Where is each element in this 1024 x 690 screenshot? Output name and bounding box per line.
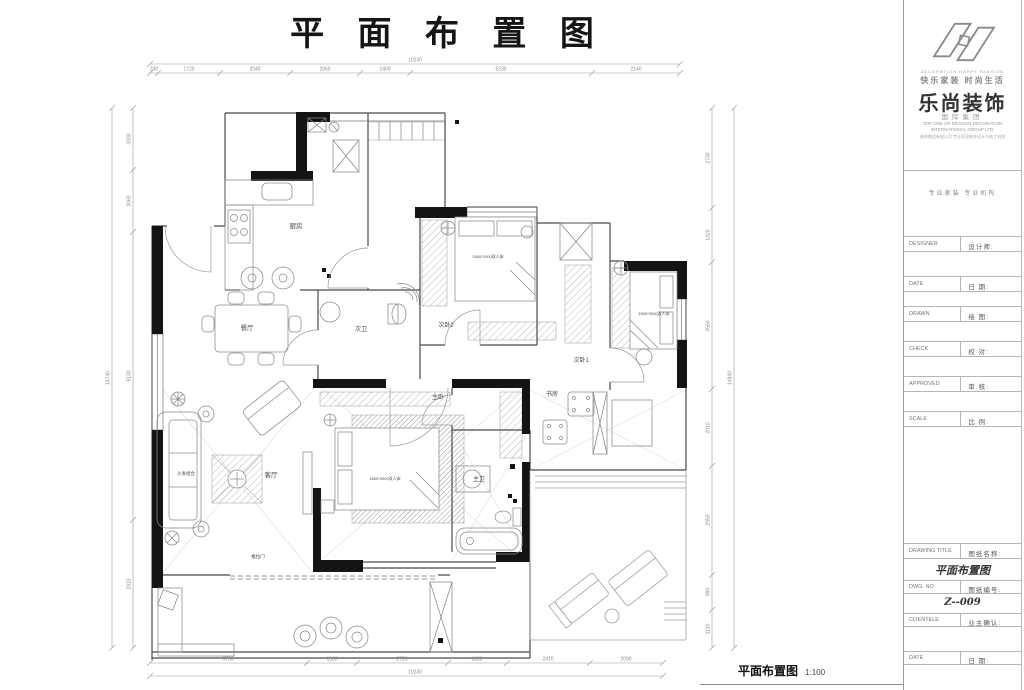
caption-underline: [700, 684, 904, 685]
field-label-en: CLIENTELE: [904, 614, 961, 626]
svg-text:2140: 2140: [630, 67, 641, 73]
dimensions: 2401720204020601400523021401023067301300…: [106, 58, 738, 680]
title-block: DECORATION HAPPY FASHION 快乐家装 时尚生活 乐尚装饰 …: [903, 0, 1022, 690]
field-label-en: DWG. NO: [904, 581, 961, 593]
field-label-cn: 校 对:: [961, 342, 989, 356]
field-label-en: DRAWING TITLE: [904, 544, 961, 558]
svg-text:2040: 2040: [249, 67, 260, 73]
svg-text:10230: 10230: [408, 670, 422, 676]
svg-text:9130: 9130: [127, 370, 133, 381]
svg-text:次卧1: 次卧1: [573, 356, 589, 364]
master-bed: [321, 414, 439, 513]
svg-text:6730: 6730: [222, 657, 233, 663]
svg-text:14940: 14940: [728, 371, 734, 385]
svg-text:推拉门: 推拉门: [251, 553, 265, 560]
field-label-cn: 设计师:: [961, 237, 993, 251]
svg-text:2730: 2730: [706, 152, 712, 163]
svg-text:2090: 2090: [620, 657, 631, 663]
company-address: 装饰集团有限公司·专业家居装饰设计与施工机构: [904, 134, 1021, 140]
slogan-cn: 快乐家装 时尚生活: [904, 75, 1021, 86]
field-label-cn: 日 期:: [961, 652, 989, 664]
field-label-cn: 日 期:: [961, 277, 989, 291]
field-label-cn: 业主确认:: [961, 614, 1001, 626]
company-logo-icon: [922, 16, 1006, 68]
svg-text:主卫: 主卫: [473, 475, 485, 483]
svg-text:主卧: 主卧: [432, 393, 444, 401]
thin-walls: [152, 113, 686, 660]
svg-text:14740: 14740: [106, 371, 112, 385]
study-furniture: [543, 392, 652, 446]
field-approved: APPROVED 审 核:: [904, 376, 1021, 392]
field-designer: DESIGNER 设计师:: [904, 236, 1021, 252]
svg-text:次卫: 次卫: [355, 325, 367, 333]
svg-text:客厅: 客厅: [265, 470, 279, 479]
svg-text:2010: 2010: [706, 422, 712, 433]
bedroom2-furniture: [441, 217, 535, 301]
dwg-no-value: Z--009: [904, 597, 1021, 608]
svg-text:240: 240: [150, 67, 159, 73]
svg-text:1300: 1300: [326, 657, 337, 663]
terrace: [530, 470, 686, 640]
field-drawing-title: DRAWING TITLE 图纸名称:: [904, 543, 1021, 559]
svg-text:5230: 5230: [495, 67, 506, 73]
svg-text:1800*2000双人床: 1800*2000双人床: [369, 475, 400, 481]
furniture: [157, 118, 686, 656]
svg-text:书房: 书房: [546, 390, 558, 398]
svg-text:1910: 1910: [127, 578, 133, 589]
field-scale: SCALE 比 例:: [904, 411, 1021, 427]
field-label-en: SCALE: [904, 412, 961, 426]
field-check: CHECK 校 对:: [904, 341, 1021, 357]
divider: [904, 170, 1021, 171]
group-name-en-2: INTERNATIONAL GROUP LTD.: [904, 127, 1021, 132]
svg-text:990: 990: [706, 588, 712, 597]
field-label-en: DRAWN: [904, 307, 961, 321]
svg-text:3060: 3060: [127, 195, 133, 206]
field-date: DATE 日 期:: [904, 276, 1021, 292]
slogan-en: DECORATION HAPPY FASHION: [904, 69, 1021, 74]
field-drawn: DRAWN 绘 图:: [904, 306, 1021, 322]
balcony-furniture: [158, 588, 368, 656]
svg-text:厨房: 厨房: [290, 221, 303, 230]
svg-text:1800: 1800: [471, 657, 482, 663]
drawing-title-value: 平面布置图: [904, 562, 1021, 578]
field-label-en: DESIGNER: [904, 237, 961, 251]
field-label-cn: 审 核:: [961, 377, 989, 391]
svg-text:10230: 10230: [408, 58, 422, 64]
brand-subtitle: 国际集团: [904, 111, 1021, 121]
drawing-sheet: 2401720204020601400523021401023067301300…: [0, 0, 1024, 690]
master-bath-fixtures: [456, 466, 522, 554]
kitchen-counter: [225, 118, 434, 290]
svg-text:2720: 2720: [396, 657, 407, 663]
plan-caption: 平面布置图1:100: [738, 662, 825, 680]
field-label-en: APPROVED: [904, 377, 961, 391]
field-label-en: DATE: [904, 652, 961, 664]
svg-text:1130: 1130: [706, 623, 712, 634]
field-label-cn: 图纸名称:: [961, 544, 1001, 558]
field-date-bottom: DATE 日 期:: [904, 651, 1021, 665]
svg-text:餐厅: 餐厅: [241, 323, 255, 332]
svg-text:1720: 1720: [183, 67, 194, 73]
svg-text:3560: 3560: [706, 320, 712, 331]
field-label-cn: 比 例:: [961, 412, 989, 426]
svg-text:2060: 2060: [319, 67, 330, 73]
svg-text:3030: 3030: [127, 133, 133, 144]
svg-text:1400: 1400: [379, 67, 390, 73]
svg-text:1320: 1320: [706, 229, 712, 240]
field-label-cn: 图纸编号:: [961, 581, 1001, 593]
field-client: CLIENTELE 业主确认:: [904, 613, 1021, 627]
plan-caption-label: 平面布置图: [738, 664, 798, 678]
svg-text:2410: 2410: [542, 657, 553, 663]
svg-text:1500*2000双人床: 1500*2000双人床: [472, 253, 503, 259]
tagline: 专业家装 专业机构: [904, 188, 1021, 197]
field-dwg-no: DWG. NO 图纸编号:: [904, 580, 1021, 594]
field-label-cn: 绘 图:: [961, 307, 989, 321]
svg-text:2950: 2950: [706, 514, 712, 525]
field-label-en: DATE: [904, 277, 961, 291]
svg-text:沙发组合: 沙发组合: [177, 470, 195, 477]
field-label-en: CHECK: [904, 342, 961, 356]
svg-text:1500*2000双人床: 1500*2000双人床: [638, 310, 669, 316]
page-title: 平 面 布 置 图: [268, 6, 628, 55]
plan-caption-scale: 1:100: [805, 668, 825, 677]
floor-plan: 2401720204020601400523021401023067301300…: [0, 0, 1024, 690]
svg-text:次卧2: 次卧2: [438, 321, 454, 329]
group-name-en-1: TOP ONE OF DRAGON DECORATION: [904, 121, 1021, 126]
